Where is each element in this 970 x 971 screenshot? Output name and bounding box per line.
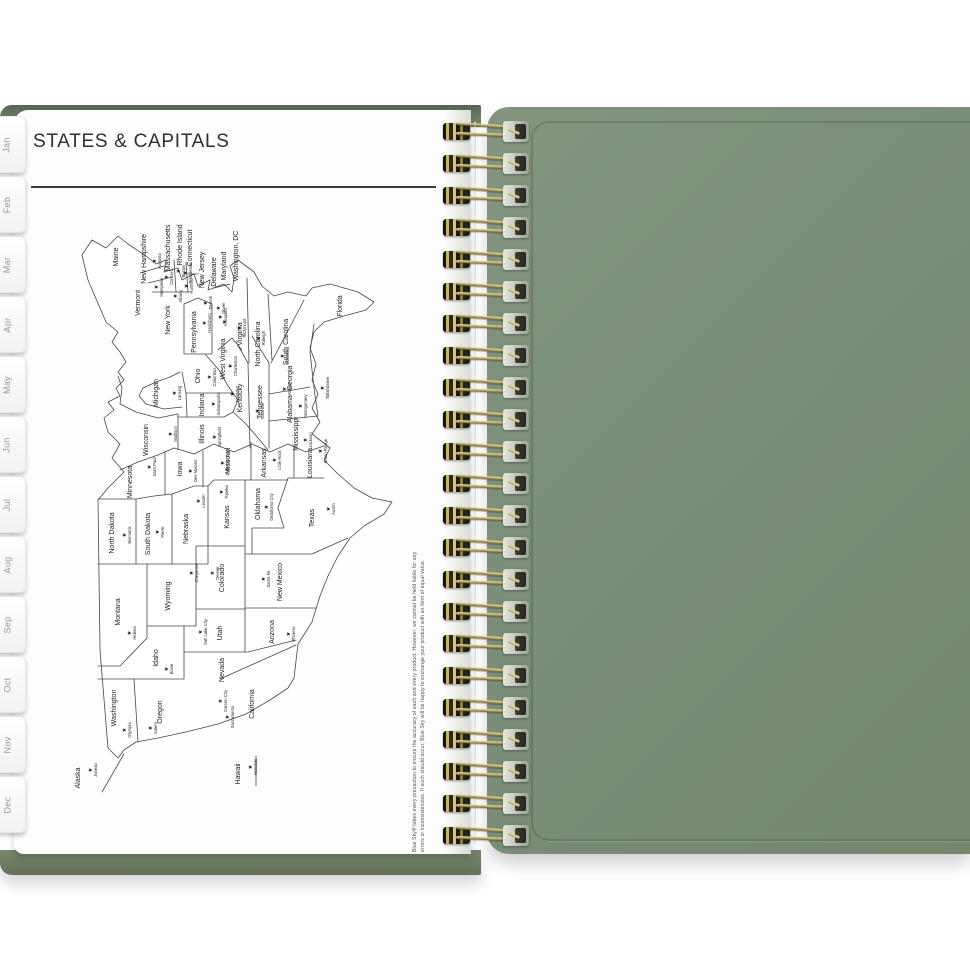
- month-tab-label: Feb: [2, 196, 12, 212]
- state-label: Pennsylvania: [191, 311, 198, 353]
- month-tab-may: May: [0, 356, 26, 413]
- capital-label: Carson City: [223, 689, 228, 712]
- spiral-loop: [440, 630, 532, 658]
- state-label: Arizona: [269, 620, 276, 644]
- state-label: Michigan: [153, 379, 160, 407]
- us-map-landscape: Washington★OlympiaOregon★SalemCalifornia…: [62, 208, 438, 800]
- capital-label: Austin: [331, 503, 336, 515]
- capital-label: Baton Rouge: [323, 438, 328, 463]
- month-tab-label: Jul: [2, 498, 12, 510]
- cover-punch-hole: [503, 249, 529, 270]
- month-tab-label: Jun: [2, 437, 12, 452]
- capital-label: Montgomery: [303, 393, 308, 417]
- state-label: New Mexico: [277, 563, 284, 601]
- cover-punch-hole: [503, 313, 529, 334]
- capital-label: Helena: [132, 626, 137, 640]
- spiral-loop: [440, 182, 532, 210]
- state-label: Minnesota: [127, 466, 134, 498]
- cover-punch-hole: [503, 697, 529, 718]
- capital-label: Cheyenne: [194, 563, 199, 583]
- capital-label: Saint Paul: [152, 457, 157, 476]
- spiral-loop: [440, 438, 532, 466]
- spiral-loop: [440, 726, 532, 754]
- spiral-loop: [440, 598, 532, 626]
- cover-punch-hole: [503, 761, 529, 782]
- state-label: Indiana: [199, 393, 206, 416]
- state-label: Hawaii: [235, 763, 242, 784]
- state-label: Idaho: [153, 649, 160, 667]
- capital-label: Little Rock: [277, 449, 282, 469]
- cover-punch-hole: [503, 473, 529, 494]
- spiral-loop: [440, 758, 532, 786]
- capital-label: Montpelier: [159, 277, 164, 297]
- capital-label: Augusta: [157, 253, 162, 269]
- spiral-loop: [440, 406, 532, 434]
- state-label: Washington: [111, 690, 118, 727]
- cover-punch-hole: [503, 825, 529, 846]
- month-tab-label: Mar: [2, 256, 12, 272]
- state-label: Wyoming: [165, 581, 172, 610]
- capital-label: Raleigh: [261, 330, 266, 345]
- month-tab-label: Aug: [2, 556, 12, 573]
- state-label: Connecticut: [187, 229, 194, 266]
- capital-label: Honolulu: [253, 758, 258, 775]
- cover-punch-hole: [503, 633, 529, 654]
- state-label: Nebraska: [183, 514, 190, 544]
- spiral-loop: [440, 790, 532, 818]
- state-label: Louisiana: [307, 448, 314, 478]
- spiral-loop: [440, 694, 532, 722]
- spiral-loop: [440, 502, 532, 530]
- month-tab-jun: Jun: [0, 416, 26, 473]
- spiral-loop: [440, 342, 532, 370]
- cover-punch-hole: [503, 217, 529, 238]
- capital-label: Indianapolis: [216, 393, 221, 415]
- state-label: California: [249, 689, 256, 719]
- state-label: Florida: [337, 295, 344, 317]
- state-label: Colorado: [219, 564, 226, 593]
- planner-product-photo: STATES & CAPITALS Washington★OlympiaOreg…: [0, 0, 970, 971]
- state-label: New York: [165, 305, 172, 335]
- cover-punch-hole: [503, 505, 529, 526]
- month-tab-apr: Apr: [0, 296, 26, 353]
- state-label: Montana: [115, 598, 122, 625]
- state-label: Delaware: [211, 257, 218, 287]
- capital-label: Jefferson City: [225, 449, 230, 475]
- month-tab-label: May: [2, 376, 12, 394]
- us-map: Washington★OlympiaOregon★SalemCalifornia…: [62, 208, 440, 802]
- capital-label: Des Moines: [193, 460, 198, 482]
- capital-label: Lansing: [177, 385, 182, 400]
- capital-label: Atlanta: [287, 382, 292, 396]
- capital-label: Santa Fe: [266, 570, 271, 588]
- spiral-loop: [440, 374, 532, 402]
- state-label: Rhode Island: [177, 224, 184, 265]
- state-label: New Jersey: [199, 251, 206, 288]
- capital-label: Pierre: [160, 526, 165, 538]
- state-label: Illinois: [199, 424, 206, 444]
- capital-label: Nashville: [260, 402, 265, 420]
- month-tab-label: Jan: [2, 137, 12, 152]
- capital-label: Lincoln: [201, 494, 206, 508]
- capital-label: Tallahassee: [325, 376, 330, 399]
- state-label: Oklahoma: [255, 488, 262, 520]
- month-tab-label: Nov: [2, 736, 12, 753]
- capital-label: Jackson: [308, 432, 313, 448]
- capital-label: Sacramento: [230, 705, 235, 728]
- state-label: Arkansas: [261, 448, 268, 478]
- state-label: Alabama: [287, 395, 294, 423]
- month-tab-feb: Feb: [0, 176, 26, 233]
- state-label: West Virginia: [220, 338, 227, 379]
- state-label: Texas: [309, 508, 316, 527]
- disclaimer-line-1: Blue Sky® takes every precaution to ensu…: [412, 550, 420, 852]
- spiral-loop: [440, 534, 532, 562]
- state-label: New Hampshire: [141, 234, 148, 284]
- state-label: Massachusetts: [165, 224, 172, 271]
- state-label: Nevada: [219, 658, 226, 682]
- capital-label: Springfield: [217, 426, 222, 446]
- cover-punch-hole: [503, 537, 529, 558]
- spiral-loop: [440, 118, 532, 146]
- disclaimer: Blue Sky® takes every precaution to ensu…: [412, 550, 430, 852]
- capital-label: Hartford: [189, 278, 194, 294]
- spiral-loop: [440, 566, 532, 594]
- state-label: Iowa: [177, 462, 184, 477]
- capital-label: Richmond: [242, 318, 247, 338]
- cover-punch-hole: [503, 185, 529, 206]
- cover-deboss-border: [531, 121, 970, 841]
- cover-punch-hole: [503, 569, 529, 590]
- capital-label: Denver: [215, 566, 220, 580]
- cover-punch-hole: [503, 793, 529, 814]
- capital-label: Phoenix: [291, 626, 296, 642]
- state-label: Utah: [217, 626, 224, 641]
- month-tab-label: Apr: [2, 317, 12, 332]
- state-label: Wisconsin: [143, 424, 150, 456]
- us-map-svg: Washington★OlympiaOregon★SalemCalifornia…: [62, 208, 438, 800]
- cover-punch-hole: [503, 153, 529, 174]
- cover-punch-hole: [503, 121, 529, 142]
- cover-punch-hole: [503, 601, 529, 622]
- capital-label: Olympia: [127, 722, 132, 738]
- spiral-loop: [440, 662, 532, 690]
- capital-label: Boise: [169, 663, 174, 674]
- month-tab-aug: Aug: [0, 536, 26, 593]
- month-tab-nov: Nov: [0, 716, 26, 773]
- month-tab-label: Dec: [2, 796, 12, 813]
- state-label: Alaska: [75, 767, 82, 788]
- state-label: Ohio: [195, 369, 202, 384]
- back-cover: [487, 107, 970, 854]
- capital-label: Frankfort: [235, 385, 240, 403]
- month-tab-oct: Oct: [0, 656, 26, 713]
- cover-punch-hole: [503, 409, 529, 430]
- cover-punch-hole: [503, 377, 529, 398]
- capital-label: Salem: [153, 722, 158, 734]
- spiral-loop: [440, 310, 532, 338]
- month-tab-jul: Jul: [0, 476, 26, 533]
- state-label: Mississippi: [293, 417, 300, 451]
- spiral-loop: [440, 214, 532, 242]
- cover-punch-hole: [503, 441, 529, 462]
- capital-label: Bismarck: [127, 525, 132, 543]
- title-rule: [31, 186, 436, 188]
- state-label: Oregon: [157, 700, 164, 723]
- cover-punch-hole: [503, 665, 529, 686]
- cover-punch-hole: [503, 345, 529, 366]
- cover-punch-hole: [503, 281, 529, 302]
- state-label: Vermont: [135, 290, 142, 316]
- capital-label: Harrisburg: [207, 313, 212, 333]
- capital-label: Topeka: [224, 485, 229, 499]
- state-label: Maine: [113, 247, 120, 266]
- month-tab-label: Sep: [2, 616, 12, 633]
- capital-star-icon: ★: [221, 319, 228, 324]
- inset-divider-lines: [102, 754, 256, 792]
- disclaimer-line-2: errors or inconsistencies. If such shoul…: [420, 550, 428, 852]
- page-title: STATES & CAPITALS: [33, 131, 230, 153]
- capital-label: Columbus: [212, 368, 217, 387]
- spiral-loop: [440, 278, 532, 306]
- state-label: Kansas: [224, 505, 231, 529]
- month-tab-jan: Jan: [0, 116, 26, 173]
- disclaimer-landscape: Blue Sky® takes every precaution to ensu…: [412, 550, 430, 852]
- capital-label: Columbia: [285, 346, 290, 364]
- state-label: Washington, DC: [233, 231, 240, 282]
- capital-label: Trenton: [208, 295, 213, 310]
- capital-label: Madison: [173, 425, 178, 441]
- capital-label: Albany: [178, 289, 183, 303]
- spiral-loop: [440, 822, 532, 850]
- state-label: North Dakota: [109, 512, 116, 553]
- capital-label: Oklahoma City: [269, 492, 274, 520]
- state-label: Maryland: [221, 252, 228, 281]
- month-tab-dec: Dec: [0, 776, 26, 833]
- state-label: South Dakota: [145, 513, 152, 556]
- capital-label: Juneau: [93, 762, 98, 776]
- spiral-loop: [440, 150, 532, 178]
- spiral-loop: [440, 246, 532, 274]
- cover-punch-hole: [503, 729, 529, 750]
- capital-label: Charleston: [233, 355, 238, 376]
- month-tab-sep: Sep: [0, 596, 26, 653]
- month-tab-mar: Mar: [0, 236, 26, 293]
- capital-label: Salt Lake City: [203, 618, 208, 645]
- month-tab-label: Oct: [2, 677, 12, 692]
- spiral-loop: [440, 470, 532, 498]
